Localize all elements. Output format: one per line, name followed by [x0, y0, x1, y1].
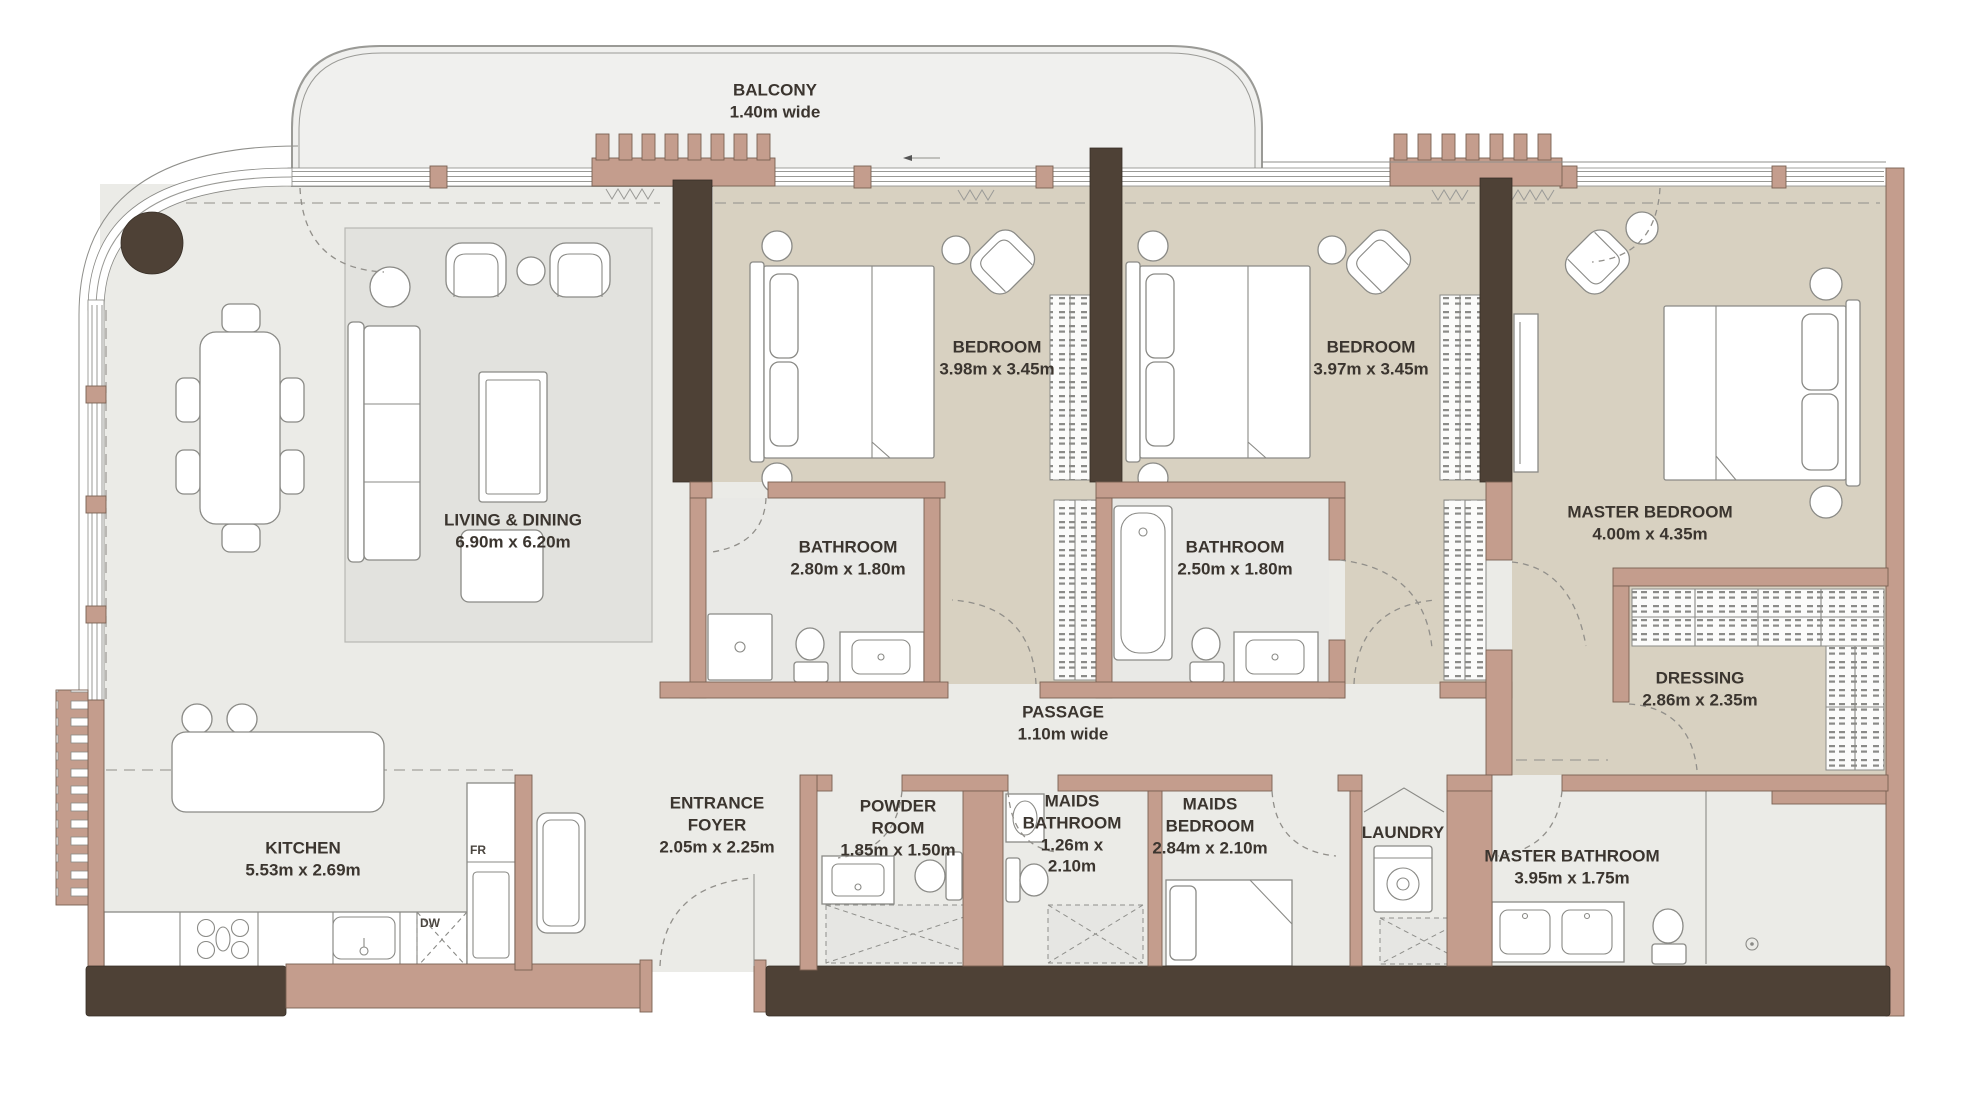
fridge [467, 783, 515, 967]
louver-icon [56, 690, 88, 905]
foyer-console [537, 813, 585, 933]
column-icon [121, 212, 183, 274]
floor-plan-drawing [0, 0, 1988, 1100]
floor-plan: BALCONY 1.40m wide LIVING & DINING 6.90m… [0, 0, 1988, 1100]
planter-icon [1390, 134, 1562, 186]
maids-bedroom-furniture [1166, 880, 1292, 966]
